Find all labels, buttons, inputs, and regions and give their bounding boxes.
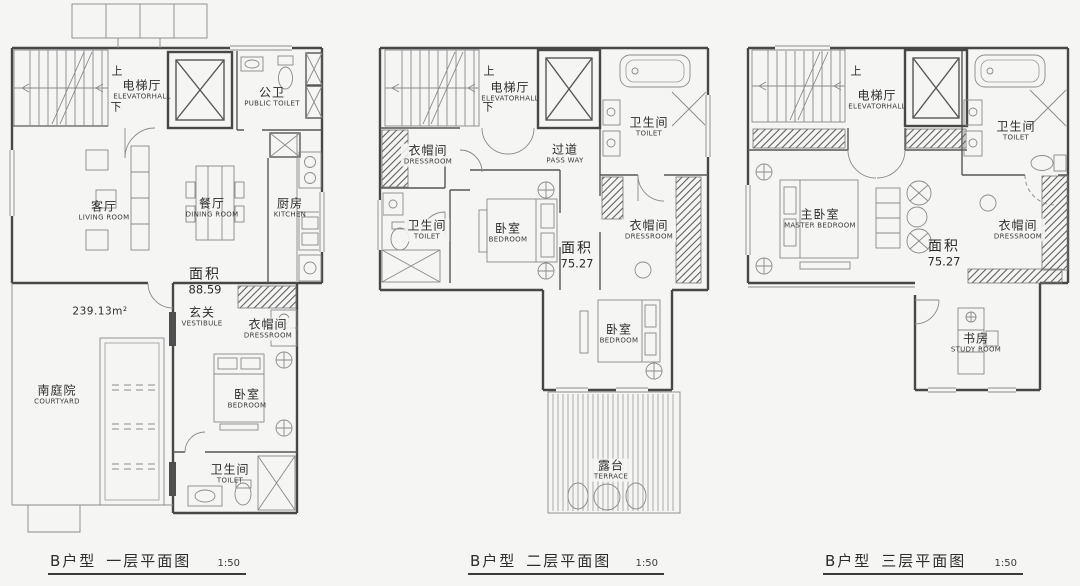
plan2-label-dressroom-right: 衣帽间 DRESSROOM <box>622 219 676 242</box>
plan2-label-toilet-left: 卫生间 TOILET <box>404 219 449 242</box>
room-name-en: PASS WAY <box>546 157 583 165</box>
room-name-cn: 电梯厅 <box>113 79 170 93</box>
room-name-en: BEDROOM <box>489 236 528 244</box>
room-name-cn: 公卫 <box>244 86 300 100</box>
room-name-en: BEDROOM <box>600 337 639 345</box>
plan2-label-bedroom-1: 卧室 BEDROOM <box>489 222 528 245</box>
room-name-en: MASTER BEDROOM <box>784 222 856 230</box>
room-name-cn: 过道 <box>546 143 583 157</box>
caption-scale: 1:50 <box>636 558 658 569</box>
plan2-area-label: 面积 75.27 <box>561 241 594 272</box>
plan3-elevator-icon <box>905 50 967 126</box>
area-title: 面积 <box>189 267 222 284</box>
room-name-en: DINING ROOM <box>186 211 239 219</box>
caption-scale: 1:50 <box>995 558 1017 569</box>
room-name-cn: 卫生间 <box>996 120 1035 134</box>
room-name-cn: 衣帽间 <box>625 219 673 233</box>
room-name-en: TOILET <box>996 134 1035 142</box>
plan2-label-elevator-hall: 电梯厅 ELEVATORHALL <box>481 81 538 104</box>
room-name-en: DRESSROOM <box>625 233 673 241</box>
room-name-en: ELEVATORHALL <box>481 95 538 103</box>
caption-unit: B户型 <box>50 550 96 571</box>
room-name-cn: 玄关 <box>182 306 223 320</box>
plan3-label-toilet: 卫生间 TOILET <box>996 120 1035 143</box>
plan2-label-bedroom-2: 卧室 BEDROOM <box>600 323 639 346</box>
plan1-label-living-room: 客厅 LIVING ROOM <box>79 200 130 223</box>
room-name-cn: 卫生间 <box>407 219 446 233</box>
room-name-cn: 卫生间 <box>210 463 249 477</box>
area-value: 75.27 <box>928 256 961 270</box>
room-name-en: BEDROOM <box>228 402 267 410</box>
plan1-label-kitchen: 厨房 KITCHEN <box>274 197 306 220</box>
floorplan-sheet: 上 下 电梯厅 ELEVATORHALL 公卫 PUBLIC TOILET 客厅… <box>0 0 1080 586</box>
room-name-en: TOILET <box>210 477 249 485</box>
caption-floor-3: B户型 三层平面图 1:50 <box>823 550 1023 575</box>
room-name-cn: 卧室 <box>600 323 639 337</box>
plan1-stair-up-label: 上 <box>112 64 123 77</box>
plan1-stair-down-label: 下 <box>111 100 122 113</box>
room-name-en: DRESSROOM <box>994 233 1042 241</box>
room-name-cn: 电梯厅 <box>848 89 905 103</box>
plan2-elevator-icon <box>538 50 600 128</box>
plan1-public-toilet-fixtures <box>241 56 293 89</box>
plan1-site-area-label: 239.13m² <box>72 306 127 319</box>
plan2-label-passway: 过道 PASS WAY <box>546 143 583 166</box>
caption-floor-1: B户型 一层平面图 1:50 <box>48 550 246 575</box>
room-name-en: KITCHEN <box>274 211 306 219</box>
room-name-cn: 卧室 <box>489 222 528 236</box>
room-name-cn: 客厅 <box>79 200 130 214</box>
room-name-en: STUDY ROOM <box>951 346 1001 354</box>
plan3-stairs-icon <box>752 50 845 122</box>
room-name-en: ELEVATORHALL <box>113 93 170 101</box>
room-name-cn: 衣帽间 <box>404 144 452 158</box>
plan3-label-dressroom: 衣帽间 DRESSROOM <box>991 219 1045 242</box>
room-name-cn: 书房 <box>951 332 1001 346</box>
plan3-label-master-bedroom: 主卧室 MASTER BEDROOM <box>784 208 856 231</box>
caption-title: 二层平面图 <box>526 550 611 571</box>
plan2-bed2 <box>580 262 662 379</box>
plan1-courtyard <box>12 283 173 532</box>
room-name-cn: 电梯厅 <box>481 81 538 95</box>
room-name-en: VESTIBULE <box>182 320 223 328</box>
plan1-elevator-icon <box>168 52 232 128</box>
plan1-stairs-icon <box>14 50 108 126</box>
room-name-cn: 卧室 <box>228 388 267 402</box>
plan3-label-study-room: 书房 STUDY ROOM <box>951 332 1001 355</box>
plan3-label-elevator-hall: 电梯厅 ELEVATORHALL <box>848 89 905 112</box>
room-name-en: TERRACE <box>594 473 628 481</box>
room-name-en: DRESSROOM <box>244 332 292 340</box>
room-name-en: TOILET <box>407 233 446 241</box>
room-name-cn: 厨房 <box>274 197 306 211</box>
plan1-label-bedroom: 卧室 BEDROOM <box>228 388 267 411</box>
plan1-living-furniture <box>86 146 149 250</box>
area-title: 面积 <box>561 241 594 258</box>
plan2-label-terrace: 露台 TERRACE <box>591 459 631 482</box>
room-name-cn: 衣帽间 <box>244 318 292 332</box>
plan3-area-label: 面积 75.27 <box>928 239 961 270</box>
area-title: 面积 <box>928 239 961 256</box>
room-name-cn: 餐厅 <box>186 197 239 211</box>
caption-scale: 1:50 <box>218 558 240 569</box>
room-name-en: COURTYARD <box>34 398 80 406</box>
plan2-bath-fixtures <box>603 55 706 156</box>
area-value: 88.59 <box>189 284 222 298</box>
caption-unit: B户型 <box>470 550 516 571</box>
room-name-en: TOILET <box>629 130 668 138</box>
area-value: 75.27 <box>561 258 594 272</box>
plan3-stair-up-label: 上 <box>851 64 862 77</box>
plan2-stairs-icon <box>385 50 479 126</box>
caption-floor-2: B户型 二层平面图 1:50 <box>468 550 664 575</box>
plan1-label-vestibule: 玄关 VESTIBULE <box>182 306 223 329</box>
room-name-cn: 衣帽间 <box>994 219 1042 233</box>
plan1-label-dressroom: 衣帽间 DRESSROOM <box>241 318 295 341</box>
plan2-label-dressroom-left: 衣帽间 DRESSROOM <box>401 144 455 167</box>
plan1-label-toilet: 卫生间 TOILET <box>210 463 249 486</box>
plan1-label-dining-room: 餐厅 DINING ROOM <box>186 197 239 220</box>
room-name-en: DRESSROOM <box>404 158 452 166</box>
caption-unit: B户型 <box>825 550 871 571</box>
caption-title: 三层平面图 <box>881 550 966 571</box>
plan2-label-toilet-right: 卫生间 TOILET <box>629 116 668 139</box>
plan1-label-public-toilet: 公卫 PUBLIC TOILET <box>244 86 300 109</box>
room-name-en: PUBLIC TOILET <box>244 100 300 108</box>
plan2-terrace <box>548 392 680 513</box>
plan1-label-elevator-hall: 电梯厅 ELEVATORHALL <box>113 79 170 102</box>
room-name-cn: 卫生间 <box>629 116 668 130</box>
room-name-cn: 露台 <box>594 459 628 473</box>
plan1-area-label: 面积 88.59 <box>189 267 222 298</box>
plan2-stair-up-label: 上 <box>484 64 495 77</box>
room-name-cn: 主卧室 <box>784 208 856 222</box>
plan1-label-courtyard: 南庭院 COURTYARD <box>34 384 80 407</box>
room-name-en: ELEVATORHALL <box>848 103 905 111</box>
room-name-cn: 南庭院 <box>34 384 80 398</box>
room-name-en: LIVING ROOM <box>79 214 130 222</box>
plan1-planter <box>72 4 207 48</box>
plan3-bath-fixtures <box>964 55 1066 171</box>
caption-title: 一层平面图 <box>106 550 191 571</box>
